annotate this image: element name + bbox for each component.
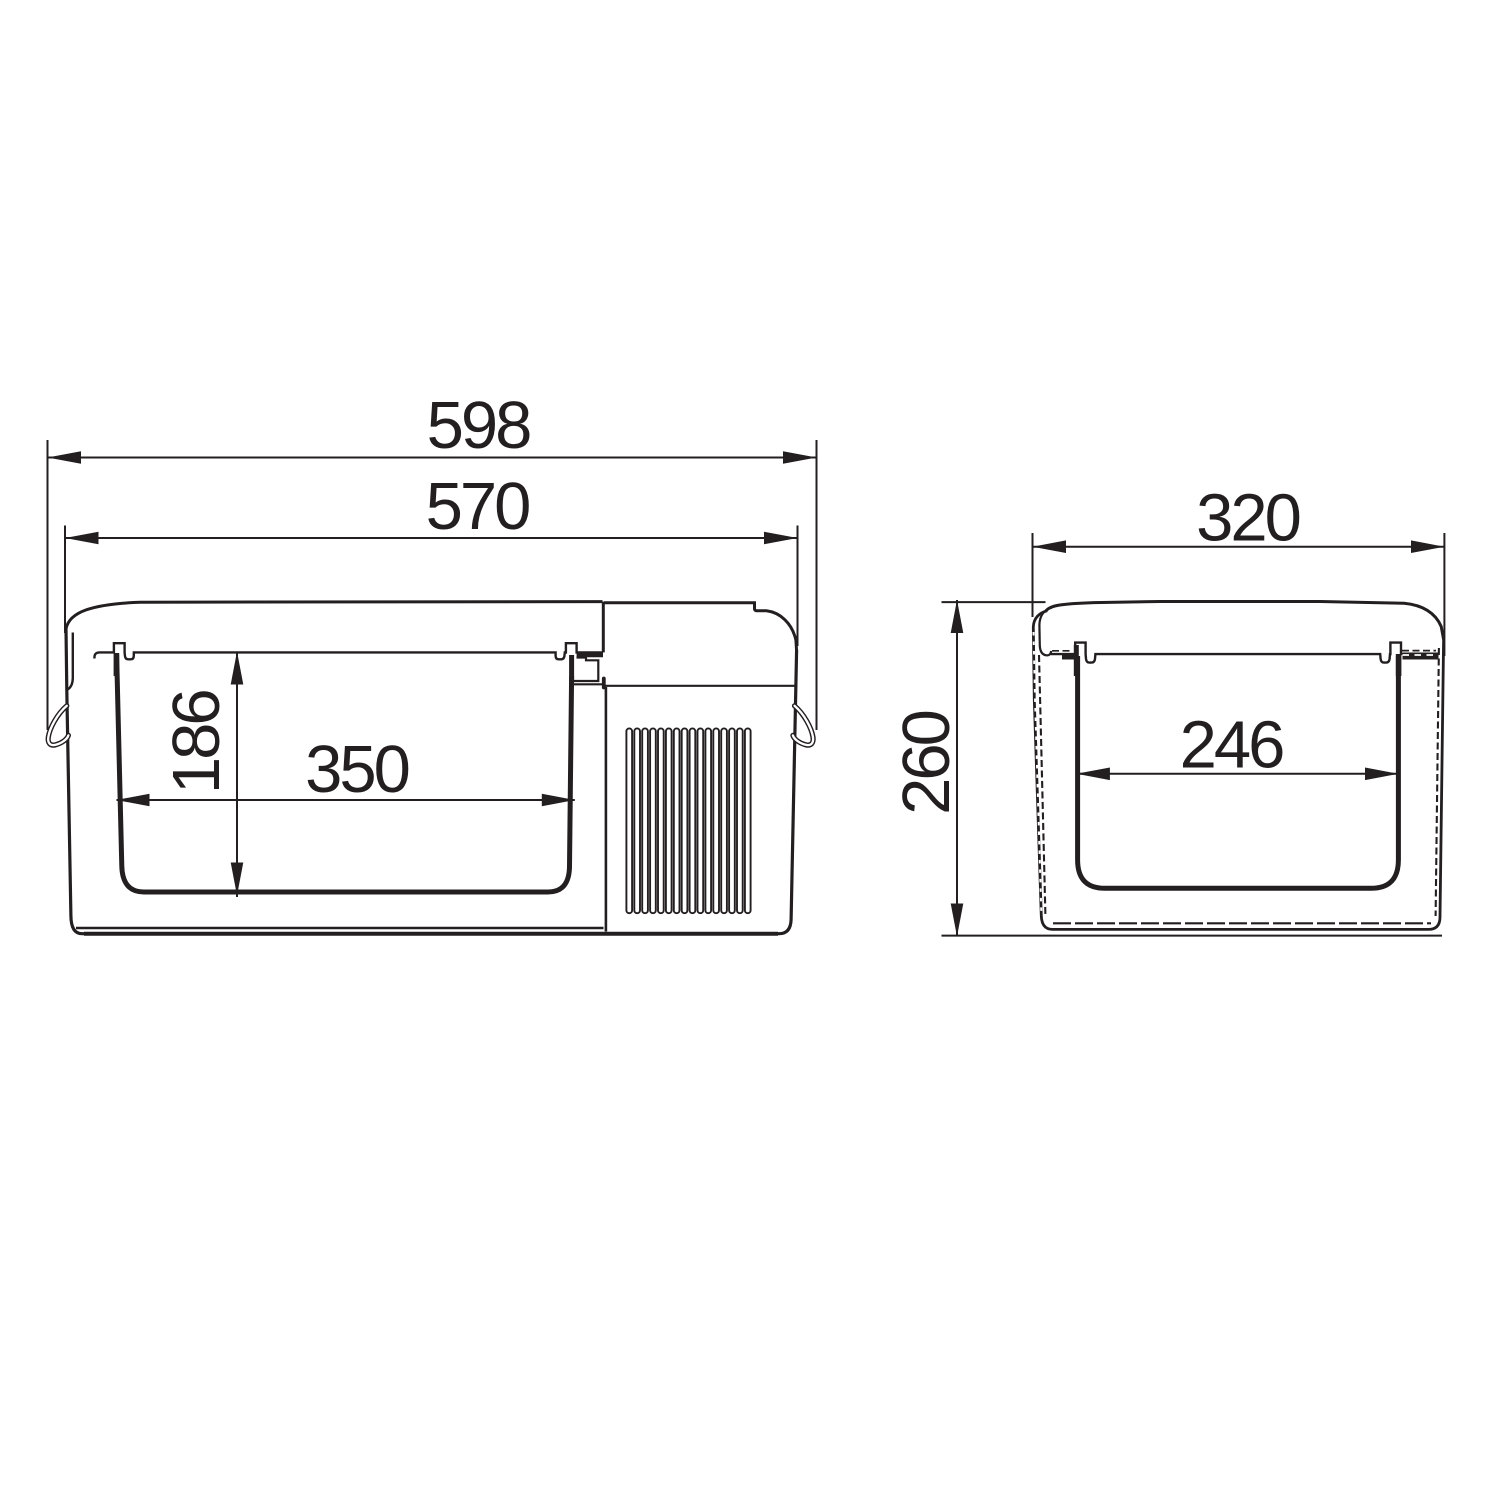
svg-text:598: 598 [427,388,531,463]
svg-text:570: 570 [426,469,530,544]
svg-text:320: 320 [1196,481,1300,556]
svg-text:246: 246 [1180,708,1284,783]
svg-text:350: 350 [305,732,409,807]
svg-text:260: 260 [889,711,964,815]
svg-text:186: 186 [159,691,234,795]
